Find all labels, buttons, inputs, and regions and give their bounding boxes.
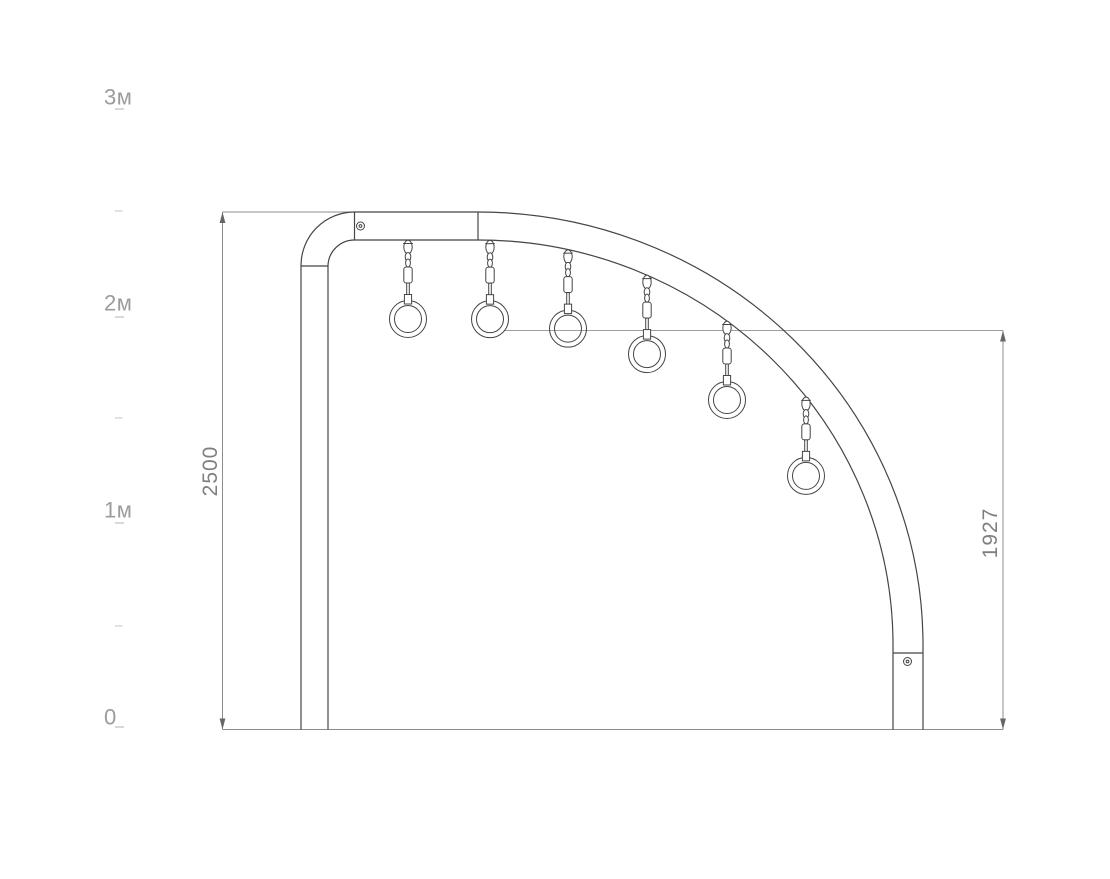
chain-link — [645, 294, 650, 302]
gym-ring-inner — [477, 306, 504, 333]
gym-ring-outer — [390, 301, 427, 338]
ring-connector-tab — [802, 451, 809, 461]
gym-ring-outer — [550, 310, 587, 347]
chain-turnbuckle — [486, 267, 494, 283]
ruler-minor-tick — [115, 210, 123, 212]
chain-turnbuckle — [564, 277, 572, 293]
chain-shackle — [404, 240, 412, 254]
arrow-up-icon — [220, 212, 226, 223]
gym-ring-inner — [395, 306, 422, 333]
elbow-inner-curve — [328, 240, 355, 266]
ring-assembly — [550, 250, 587, 347]
chain-turnbuckle — [404, 267, 412, 283]
chain-shackle — [643, 275, 651, 289]
ring-assembly — [390, 240, 427, 337]
dimension-value-1927: 1927 — [979, 508, 1003, 559]
gym-ring-outer — [709, 382, 746, 419]
gym-ring-inner — [555, 315, 582, 342]
ring-connector-tab — [564, 304, 571, 314]
technical-drawing-page: 3м 2м 1м 0 2500 1927 — [0, 0, 1110, 879]
ruler-minor-tick — [115, 417, 123, 419]
ring-assembly — [788, 397, 825, 494]
chain-shackle — [564, 250, 572, 264]
chain-link — [725, 340, 730, 348]
arrow-up-icon — [1000, 331, 1006, 342]
ring-assembly — [472, 240, 509, 337]
chain-turnbuckle — [802, 424, 810, 440]
gym-ring-inner — [634, 341, 661, 368]
screw-icon — [357, 222, 365, 230]
scale-label-3m: 3м — [104, 84, 132, 110]
ring-assembly — [629, 275, 666, 372]
gym-ring-outer — [788, 457, 825, 494]
elbow-outer-curve — [301, 212, 355, 266]
scale-label-2m: 2м — [104, 290, 132, 316]
gym-ring-outer — [472, 301, 509, 338]
gym-ring-inner — [714, 387, 741, 414]
chain-turnbuckle — [643, 302, 651, 318]
chain-shackle — [802, 397, 810, 411]
gym-ring-outer — [629, 336, 666, 373]
chain-shackle — [486, 240, 494, 254]
arch-outer-edge — [478, 212, 923, 730]
scale-label-0: 0 — [104, 704, 117, 730]
arch-inner-edge — [478, 240, 893, 730]
ruler-minor-tick — [115, 625, 123, 627]
ring-connector-tab — [486, 295, 493, 305]
chain-shackle — [723, 321, 731, 335]
dimension-value-2500: 2500 — [199, 446, 223, 497]
arrow-down-icon — [1000, 719, 1006, 730]
arrow-down-icon — [220, 719, 226, 730]
chain-link — [406, 259, 411, 267]
chain-link — [488, 259, 493, 267]
chain-turnbuckle — [723, 348, 731, 364]
screw-icon — [904, 658, 912, 666]
scale-label-1m: 1м — [104, 497, 132, 523]
ring-connector-tab — [404, 295, 411, 305]
chain-link — [566, 269, 571, 277]
ring-connector-tab — [723, 376, 730, 386]
arch-with-rings-drawing — [0, 0, 1110, 879]
ring-connector-tab — [643, 330, 650, 340]
ring-assembly — [709, 321, 746, 418]
gym-ring-inner — [793, 462, 820, 489]
chain-link — [804, 416, 809, 424]
